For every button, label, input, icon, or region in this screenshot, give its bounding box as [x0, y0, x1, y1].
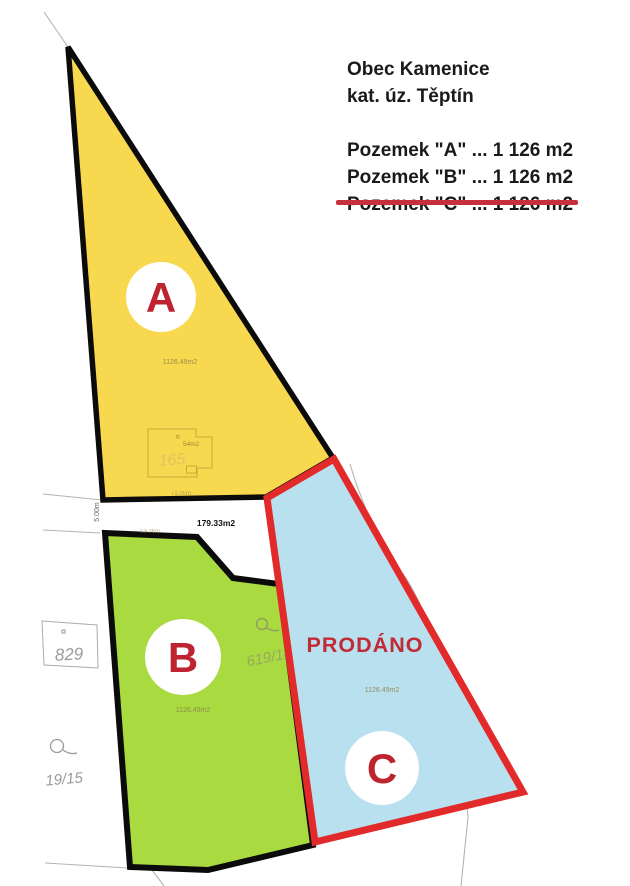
- cadastral-boundary-line: [44, 12, 68, 47]
- parcel-c-badge: C: [345, 731, 419, 805]
- parcel-b-area-label: 1126.49m2: [176, 707, 211, 714]
- building-number-label: 165: [158, 451, 186, 470]
- parcel-b-letter: B: [168, 634, 198, 681]
- cadastral-boundary-line: [152, 870, 164, 886]
- plot-829-label: 829: [54, 644, 84, 664]
- parcel-b-badge: B: [145, 619, 221, 695]
- parcel-a-shape: [68, 47, 333, 500]
- title-block: Obec Kamenice kat. úz. Těptín Pozemek "A…: [347, 56, 617, 218]
- legend-row-parcel-b: Pozemek "B" ... 1 126 m2: [347, 164, 617, 191]
- cadastral-boundary-line: [43, 530, 100, 533]
- cadastral-boundary-line: [43, 494, 102, 500]
- municipality-title: Obec Kamenice: [347, 56, 617, 83]
- plot-19-15-label: 19/15: [45, 769, 85, 789]
- cadastral-map-page: 54m2 165 1126.49m2 71.00m 1126.49m2 13.3…: [0, 0, 630, 886]
- parcel-c-status-label: PRODÁNO: [307, 632, 424, 657]
- legend-row-parcel-c: Pozemek "C" ... 1 126 m2: [347, 191, 617, 218]
- strip-width-label: 5.00m: [94, 502, 101, 522]
- parcel-c-area-label: 1126.49m2: [365, 687, 400, 694]
- dimension-b-top-label: 13.36m: [140, 529, 160, 535]
- land-use-symbol-icon: [51, 740, 78, 754]
- parcel-a-letter: A: [146, 274, 176, 321]
- building-area-label: 54m2: [183, 441, 200, 448]
- strip-area-label: 179.33m2: [197, 518, 236, 528]
- parcel-a-area-label: 1126.49m2: [163, 359, 198, 366]
- cadastre-subtitle: kat. úz. Těptín: [347, 83, 617, 110]
- cadastral-boundary-line: [45, 863, 128, 868]
- legend-row-parcel-a: Pozemek "A" ... 1 126 m2: [347, 137, 617, 164]
- spacer: [347, 110, 617, 137]
- parcel-a-badge: A: [126, 262, 196, 332]
- parcel-c-letter: C: [367, 745, 397, 792]
- sold-strikethrough-line: [336, 200, 578, 205]
- dimension-a-bottom-label: 71.00m: [171, 491, 191, 497]
